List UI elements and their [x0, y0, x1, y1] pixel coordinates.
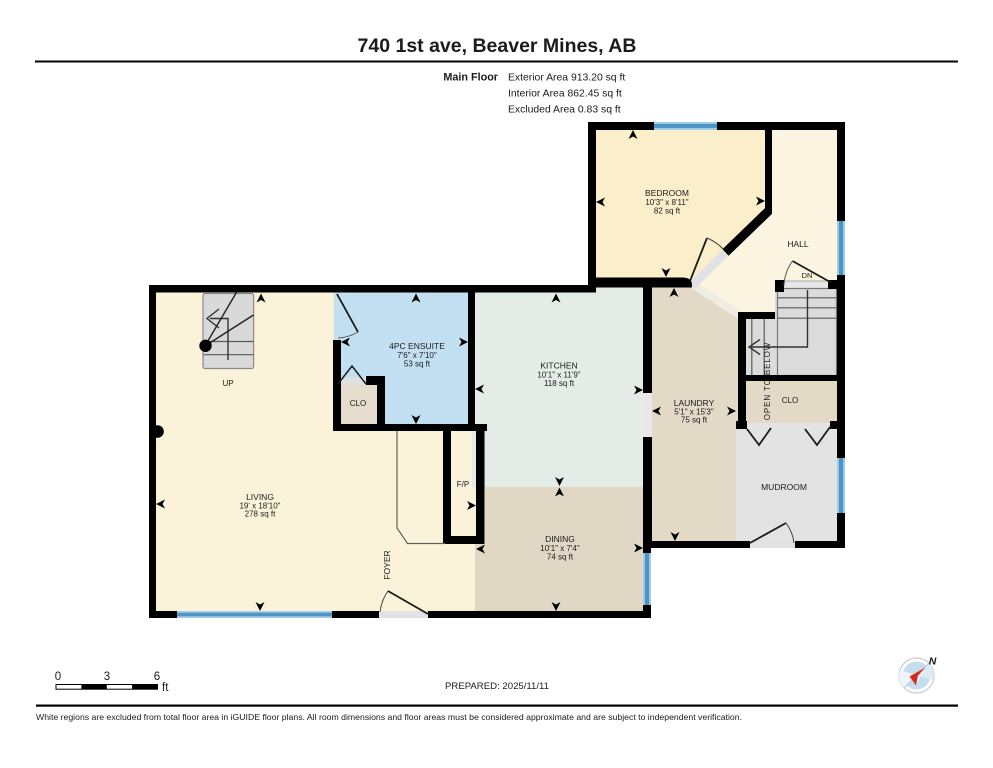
svg-text:UP: UP — [222, 379, 233, 388]
svg-text:LAUNDRY: LAUNDRY — [674, 398, 715, 408]
svg-text:CLO: CLO — [782, 396, 798, 405]
svg-text:LIVING: LIVING — [246, 492, 274, 502]
svg-text:118 sq ft: 118 sq ft — [544, 379, 575, 388]
svg-text:82 sq ft: 82 sq ft — [654, 207, 681, 216]
svg-text:6: 6 — [154, 671, 160, 683]
svg-text:DN: DN — [802, 271, 813, 280]
svg-text:Excluded Area 0.83 sq ft: Excluded Area 0.83 sq ft — [508, 105, 621, 116]
svg-text:278 sq ft: 278 sq ft — [245, 510, 276, 519]
svg-text:HALL: HALL — [787, 239, 809, 249]
svg-text:53 sq ft: 53 sq ft — [404, 360, 431, 369]
svg-text:DINING: DINING — [545, 534, 575, 544]
svg-text:BEDROOM: BEDROOM — [645, 188, 689, 198]
svg-text:CLO: CLO — [350, 399, 366, 408]
svg-text:ft: ft — [162, 682, 169, 694]
svg-text:74 sq ft: 74 sq ft — [547, 553, 574, 562]
svg-text:Main Floor: Main Floor — [443, 72, 498, 84]
svg-text:75 sq ft: 75 sq ft — [681, 416, 708, 425]
svg-text:0: 0 — [55, 671, 61, 683]
svg-text:OPEN TO BELOW: OPEN TO BELOW — [763, 342, 772, 421]
svg-text:N: N — [929, 656, 937, 668]
svg-text:Interior Area 862.45 sq ft: Interior Area 862.45 sq ft — [508, 89, 622, 100]
svg-text:MUDROOM: MUDROOM — [761, 482, 807, 492]
svg-text:F/P: F/P — [457, 480, 469, 489]
svg-text:PREPARED: 2025/11/11: PREPARED: 2025/11/11 — [445, 681, 549, 692]
svg-text:FOYER: FOYER — [382, 550, 392, 579]
svg-text:4PC ENSUITE: 4PC ENSUITE — [389, 341, 445, 351]
svg-text:740 1st ave, Beaver Mines, AB: 740 1st ave, Beaver Mines, AB — [358, 35, 637, 57]
svg-text:Exterior Area 913.20 sq ft: Exterior Area 913.20 sq ft — [508, 73, 625, 84]
svg-text:White regions are excluded fro: White regions are excluded from total fl… — [36, 712, 742, 722]
svg-text:3: 3 — [104, 671, 110, 683]
svg-text:KITCHEN: KITCHEN — [540, 361, 577, 371]
